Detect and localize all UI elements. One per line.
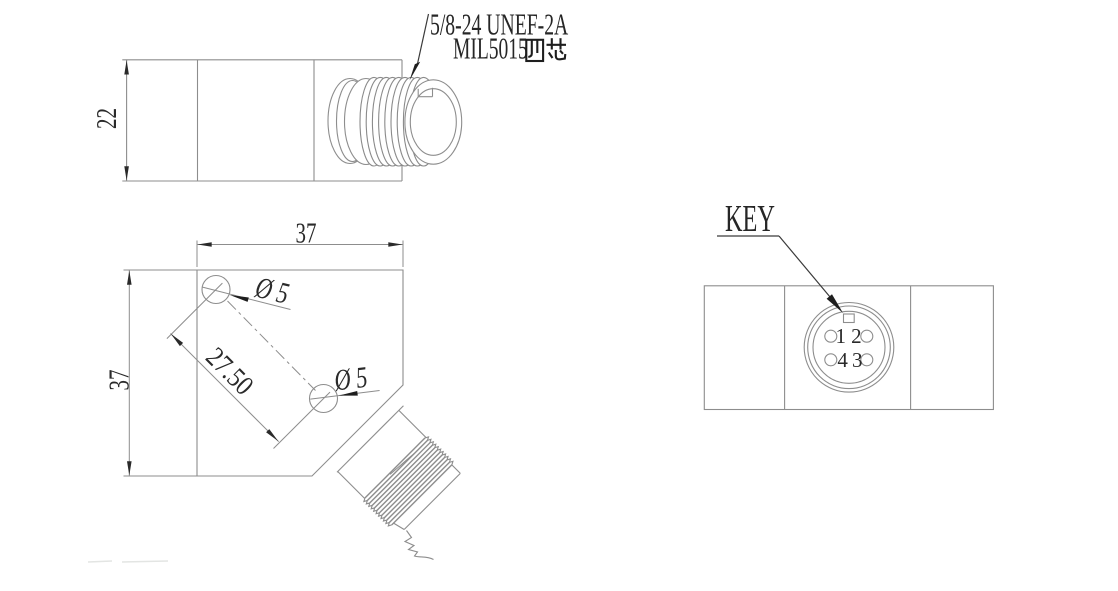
svg-text:37: 37: [296, 219, 317, 250]
svg-text:22: 22: [92, 108, 123, 129]
svg-text:37: 37: [105, 370, 136, 391]
svg-text:MIL5015: MIL5015: [453, 31, 528, 66]
svg-text:3: 3: [852, 348, 863, 372]
svg-text:Ø 5: Ø 5: [331, 360, 369, 398]
svg-text:4: 4: [837, 348, 848, 372]
svg-text:2: 2: [851, 324, 862, 348]
svg-text:1: 1: [836, 324, 847, 348]
svg-text:KEY: KEY: [725, 198, 775, 240]
